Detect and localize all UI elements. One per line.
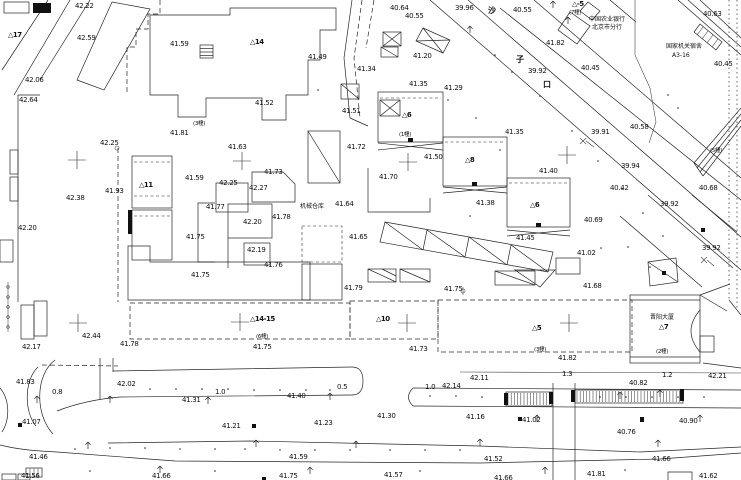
road-dot [424,449,426,451]
tree-icon [353,441,358,448]
road-dot [214,448,216,450]
tree-icon [697,415,702,422]
strip-buildings [130,269,632,352]
survey-cross-icon [560,314,578,332]
solid-mark [252,424,256,428]
tree-icon [550,1,555,8]
road-dot [667,94,669,96]
tree-icon [657,390,662,397]
road-dot [459,449,461,451]
survey-cross-icon [233,152,251,170]
hatched-strip-building [694,108,741,176]
road-dot [600,247,602,249]
road-dot [389,449,391,451]
road-dot [494,54,496,56]
road-dot [651,396,653,398]
tree-icon [34,396,39,403]
road-dot [662,235,664,237]
tree-icon [157,466,162,473]
tree-icon [542,467,547,474]
survey-crosses [68,146,578,332]
survey-map-stage: 42.2242.5941.5942.0642.6440.6440.5539.96… [0,0,741,480]
road-dot [642,212,644,214]
road-dot [481,396,483,398]
solid-mark [504,393,508,405]
solid-mark [549,392,553,404]
road-dots [74,54,705,472]
center-path [341,0,450,126]
road-dot [511,71,513,73]
road-dot [305,389,307,391]
solid-mark [518,417,522,421]
road-dot [227,388,229,390]
road-dot [703,396,705,398]
road-dot [279,389,281,391]
tree-icon [655,440,660,447]
tree-icon [85,442,90,449]
road-dot [253,389,255,391]
tree-icon [107,396,112,403]
road-dot [74,448,76,450]
solid-mark [571,390,575,402]
survey-cross-icon [399,153,417,171]
solid-mark [640,417,644,422]
road-dot [279,449,281,451]
road-dot [314,449,316,451]
road-dot [109,447,111,449]
road-dot [621,188,623,190]
survey-map-canvas [0,0,741,480]
road-dot [144,447,146,449]
road-dot [149,388,151,390]
survey-cross-icon [231,313,249,331]
road-dot [571,130,573,132]
road-dot [429,395,431,397]
topleft-road-lines [0,0,213,339]
road-dot [599,396,601,398]
road-dot [649,266,651,268]
solid-mark [472,182,477,186]
road-dot [499,149,501,151]
survey-cross-icon [69,314,87,332]
central-complex [115,131,342,302]
tree-icon [534,415,539,422]
bus-platform-hatch [506,390,683,406]
road-dot [539,95,541,97]
road-dot [597,160,599,162]
solid-mark [128,210,132,234]
slope-arrow-icon [580,138,714,266]
road-dot [419,470,421,472]
tree-icon [307,467,312,474]
diagonal-road-lines [430,0,741,287]
solid-mark [536,223,541,227]
tree-icon [327,393,332,400]
solid-mark [701,228,705,232]
road-dot [625,396,627,398]
solid-mark [18,423,22,427]
road-dot [89,470,91,472]
road-dot [469,215,471,217]
road-dot [627,246,629,248]
road-dot [214,470,216,472]
road-dot [447,99,449,101]
survey-cross-icon [68,151,86,169]
road-dot [455,395,457,397]
road-dot [244,448,246,450]
solid-mark [33,3,51,13]
tree-icon [477,439,482,446]
road-dot [475,117,477,119]
road-dot [317,89,319,91]
road-dot [175,388,177,390]
building-14-outline [150,8,336,120]
survey-cross-icon [398,314,416,332]
road-dot [349,449,351,451]
building-7-block [630,284,741,368]
road-dot [179,448,181,450]
road-dot [677,107,679,109]
solid-mark [680,389,684,401]
lower-roads [0,358,741,480]
road-dot [329,389,331,391]
tree-icon [467,26,472,33]
road-dot [624,469,626,471]
solid-marks [18,3,705,480]
road-dot [201,388,203,390]
solid-mark [662,271,666,275]
tree-icon [205,397,210,404]
survey-cross-icon [558,146,576,164]
solid-mark [408,138,413,142]
road-dot [677,396,679,398]
